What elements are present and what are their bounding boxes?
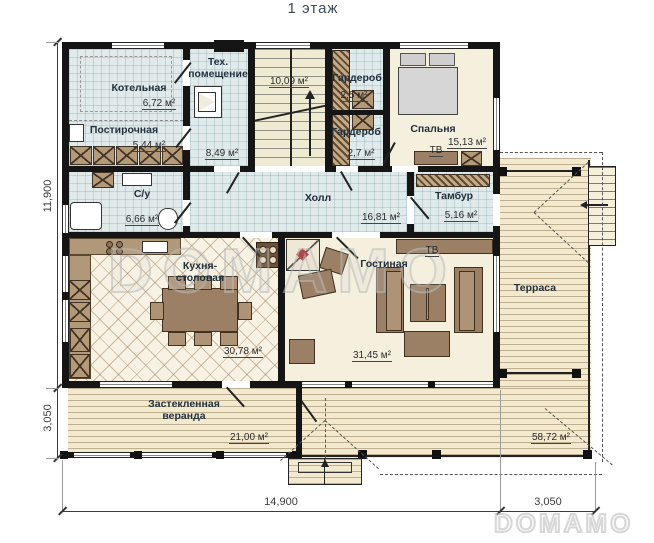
floor-plan-page: 1 этаж	[0, 0, 654, 543]
ext-line	[595, 462, 596, 512]
room-area-kotelnaya: 6,72 м²	[136, 98, 182, 109]
room-name-terrace: Терраса	[506, 282, 564, 294]
room-name-kotelnaya: Котельная	[104, 82, 174, 94]
porch-centerline-dashed	[325, 398, 326, 458]
room-name-bedroom: Спальня	[404, 123, 462, 135]
post	[134, 451, 142, 459]
post	[498, 369, 507, 378]
window	[400, 42, 468, 49]
wall	[62, 166, 183, 172]
kitchen-appliance-icon	[69, 280, 91, 300]
window	[256, 42, 310, 49]
deck-edge	[302, 455, 592, 457]
post	[432, 450, 441, 459]
kitchen-sink-icon	[142, 241, 168, 253]
room-area-su: 6,66 м²	[118, 214, 166, 225]
loveseat	[410, 284, 446, 322]
dim-line-left	[57, 42, 58, 458]
stairs-up-arrow-icon	[305, 90, 315, 99]
room-area-wardrobe2: 2,7 м²	[340, 148, 382, 159]
window	[112, 42, 164, 49]
roof-overhang-dashed	[380, 474, 602, 475]
room-area-hall: 16,81 м²	[356, 212, 406, 223]
bathtub-icon	[70, 202, 102, 230]
window	[142, 452, 212, 458]
kotelnaya-postir-divider	[69, 120, 183, 121]
room-name-kitchen: Кухня-столовая	[160, 260, 240, 284]
room-area-tech: 8,49 м²	[198, 148, 246, 159]
terrace-rail	[507, 372, 572, 374]
roof-overhang-dashed	[500, 152, 602, 153]
room-area-kitchen: 30,78 м²	[216, 346, 270, 357]
logo-watermark: DOMAMO	[494, 508, 650, 539]
dim-line-bottom	[62, 511, 596, 512]
ext-line	[500, 390, 501, 512]
room-name-living: Гостиная	[350, 258, 418, 270]
room-name-su: С/у	[126, 188, 158, 200]
bedroom-cabinet-icon	[461, 151, 482, 166]
wall	[62, 381, 302, 388]
kitchen-cabinet-icon	[70, 354, 90, 378]
post	[583, 450, 592, 459]
sofa	[376, 267, 404, 333]
laundry-cabinet-icon	[93, 146, 115, 165]
door-opening	[392, 166, 418, 172]
room-area-veranda: 21,00 м²	[222, 432, 276, 443]
sink-icon	[122, 173, 152, 186]
ext-line	[46, 42, 58, 43]
room-area-wardrobe1: 2,5 м²	[334, 90, 374, 101]
chimney-block	[214, 40, 244, 52]
window	[100, 381, 172, 388]
room-area-postirochnaya: 5,44 м²	[126, 140, 172, 151]
porch-arrow-icon	[321, 459, 329, 467]
room-name-wardrobe1: Гардероб	[332, 72, 382, 84]
wall	[325, 42, 332, 172]
stairs-divider	[290, 49, 292, 166]
room-name-veranda: Застекленная веранда	[128, 398, 240, 422]
steps-arrow	[584, 204, 608, 206]
post	[428, 381, 435, 388]
window	[62, 300, 69, 342]
pillow	[429, 53, 455, 66]
steps-arrow-icon	[580, 201, 587, 209]
room-area-terrace: 58,72 м²	[522, 432, 580, 443]
terrace-rail	[507, 170, 572, 172]
shower-icon	[92, 172, 114, 188]
armchair	[289, 339, 315, 364]
wall	[278, 238, 285, 381]
wall	[296, 388, 302, 458]
dining-table	[162, 288, 238, 332]
post	[216, 451, 224, 459]
kitchen-appliance-icon	[69, 302, 91, 322]
ext-line	[46, 458, 58, 459]
room-name-tech: Тех. помещение	[186, 56, 250, 80]
room-area-living: 31,45 м²	[344, 350, 400, 361]
door-opening	[214, 166, 240, 172]
window	[224, 452, 286, 458]
door-opening	[493, 194, 500, 226]
room-area-tambur: 5,16 м²	[436, 210, 486, 221]
glazed-wall	[302, 381, 493, 388]
fireplace-icon	[286, 239, 320, 271]
page-title: 1 этаж	[0, 0, 626, 17]
bed	[398, 67, 458, 115]
window	[493, 256, 500, 332]
room-name-wardrobe2: Гардероб	[330, 126, 382, 138]
tv-label-bedroom: ТВ	[422, 145, 450, 156]
tambur-closet-hatch	[416, 174, 490, 187]
washer-icon	[69, 124, 84, 142]
floor-terrace-bottom	[302, 388, 591, 458]
pillow	[400, 53, 426, 66]
room-name-tambur: Тамбур	[428, 190, 480, 202]
post	[498, 167, 507, 176]
coffee-table	[404, 331, 450, 357]
tv-label-living: ТВ	[418, 245, 446, 256]
dim-left-main: 11,900	[42, 174, 54, 218]
room-name-hall: Холл	[296, 192, 340, 204]
window	[62, 256, 69, 292]
room-area-stairs: 10,09 м²	[262, 76, 316, 87]
door-opening	[240, 232, 272, 238]
boiler-triangle-icon	[199, 93, 215, 111]
post	[572, 369, 581, 378]
laundry-cabinet-icon	[70, 146, 92, 165]
dim-bottom-main: 14,900	[236, 496, 326, 508]
room-name-postirochnaya: Постирочная	[86, 124, 162, 136]
dim-bottom-terrace: 3,050	[518, 496, 578, 508]
door-opening	[332, 232, 380, 238]
ext-line	[62, 460, 63, 512]
kitchen-cabinet-icon	[70, 328, 90, 352]
window	[74, 452, 130, 458]
dim-left-veranda: 3,050	[42, 396, 54, 440]
window	[493, 98, 500, 150]
window	[62, 205, 69, 233]
roof-overhang-dashed	[602, 152, 603, 462]
wall	[332, 110, 383, 115]
sofa	[454, 267, 483, 333]
ext-line	[46, 388, 58, 389]
post	[345, 381, 352, 388]
